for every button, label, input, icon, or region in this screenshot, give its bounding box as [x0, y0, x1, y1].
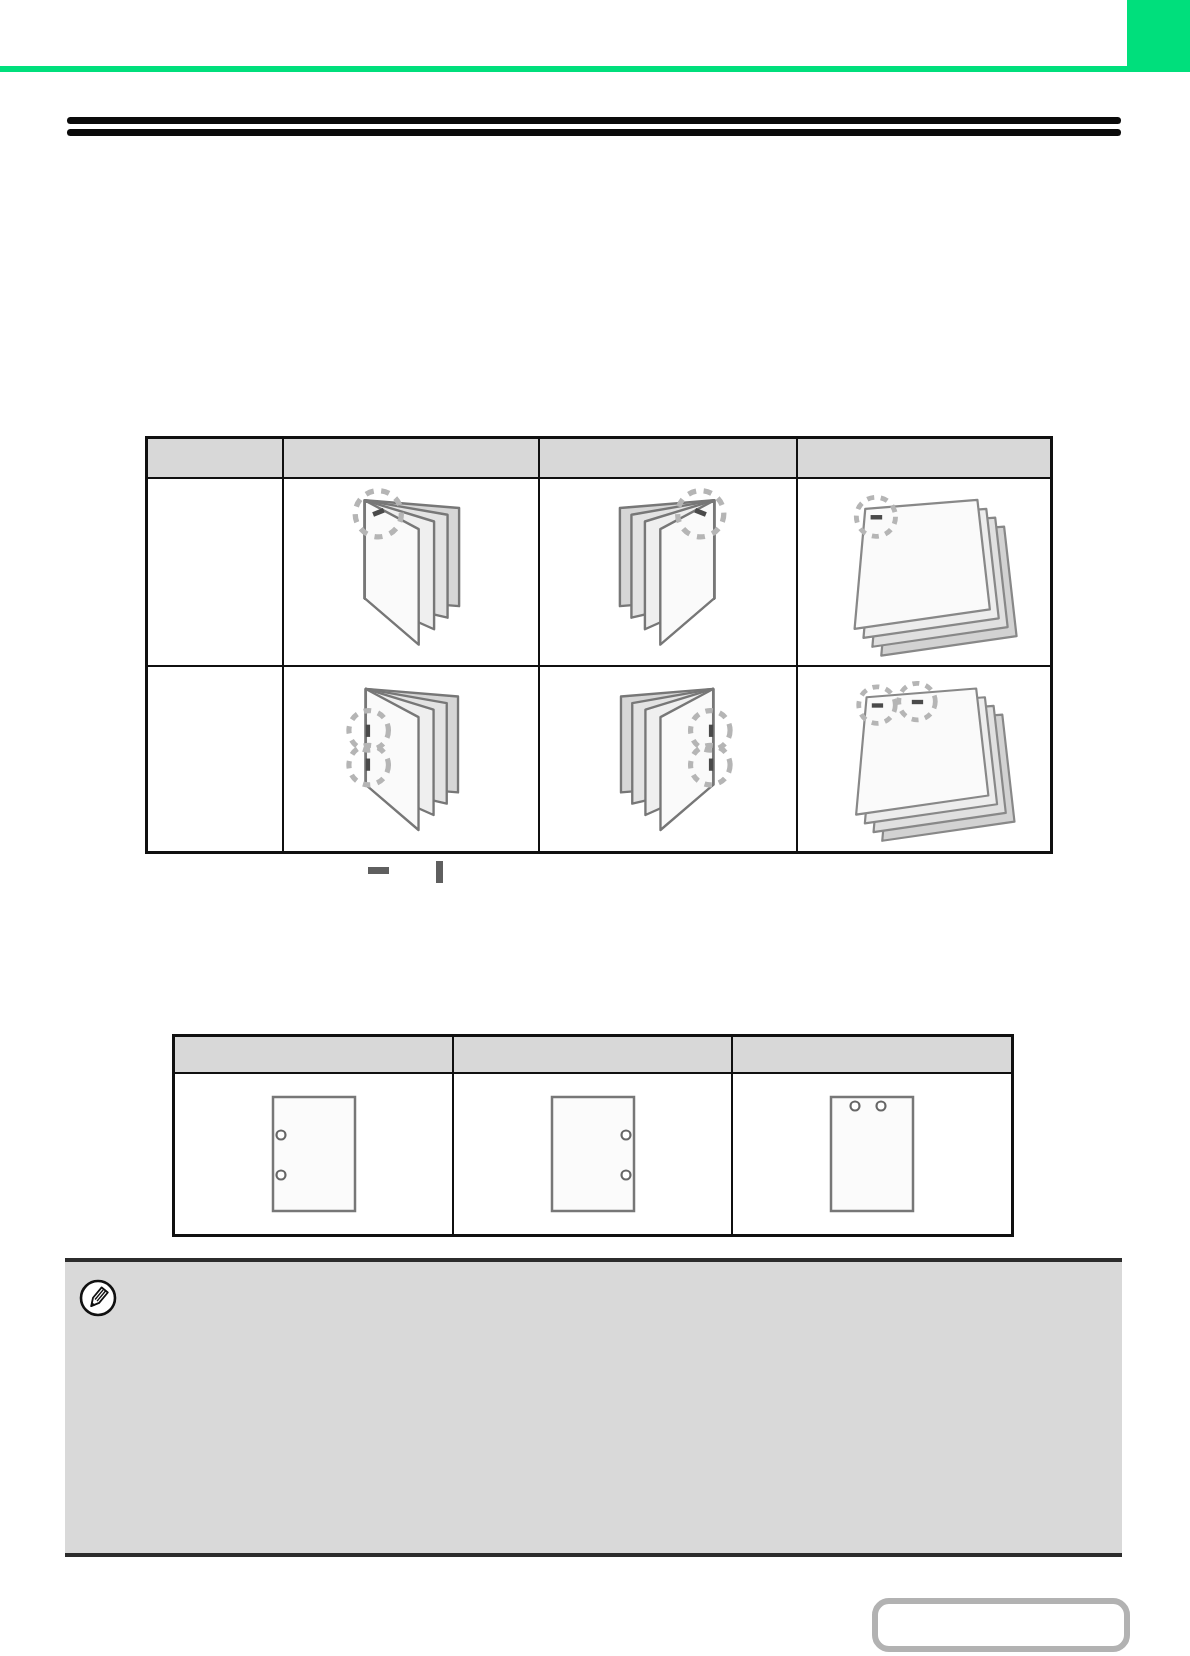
punch-table-header-col2	[454, 1037, 733, 1074]
staple-row1-illustration-stack	[798, 479, 1050, 667]
punch-table-header-col3	[733, 1037, 1011, 1074]
booklet-two-staples-right-icon	[558, 672, 778, 846]
punch-positions-table	[172, 1034, 1014, 1237]
staple-positions-table	[145, 436, 1053, 854]
staple-row2-illustration-right-bound	[540, 667, 798, 851]
staple-row2-label	[148, 667, 284, 851]
staple-table-header-col2	[540, 439, 798, 479]
staple-table-header-col1	[284, 439, 540, 479]
booklet-one-staple-left-icon	[301, 483, 521, 661]
booklet-one-staple-right-icon	[558, 483, 778, 661]
sheet-punched-top-icon	[822, 1089, 922, 1219]
staple-row2-illustration-left-bound	[284, 667, 540, 851]
page-link-box[interactable]	[872, 1598, 1130, 1652]
staple-table-header-col3	[798, 439, 1050, 479]
punch-cell-left-edge	[175, 1074, 454, 1234]
staple-row1-label	[148, 479, 284, 667]
punch-cell-top-edge	[733, 1074, 1011, 1234]
legend-vertical-staple-mark	[436, 861, 443, 883]
manual-page: { "page": { "kind": "printer-manual-page…	[0, 0, 1190, 1656]
title-rule-top	[67, 117, 1121, 124]
note-box	[65, 1258, 1122, 1557]
sheet-stack-two-staples-icon	[812, 672, 1036, 846]
staple-row1-illustration-right-bound	[540, 479, 798, 667]
staple-row1-illustration-left-bound	[284, 479, 540, 667]
staple-table-header-rowlabel	[148, 439, 284, 479]
sheet-punched-right-icon	[543, 1089, 643, 1219]
sheet-stack-one-staple-icon	[812, 483, 1036, 661]
punch-cell-right-edge	[454, 1074, 733, 1234]
punch-table-header-col1	[175, 1037, 454, 1074]
sheet-punched-left-icon	[264, 1089, 364, 1219]
title-rule-bottom	[67, 129, 1121, 136]
staple-row2-illustration-stack	[798, 667, 1050, 851]
legend-horizontal-staple-mark	[368, 867, 389, 874]
booklet-two-staples-left-icon	[301, 672, 521, 846]
header-green-corner-block	[1127, 0, 1190, 72]
pencil-icon	[78, 1278, 118, 1318]
header-green-bar	[0, 66, 1190, 72]
